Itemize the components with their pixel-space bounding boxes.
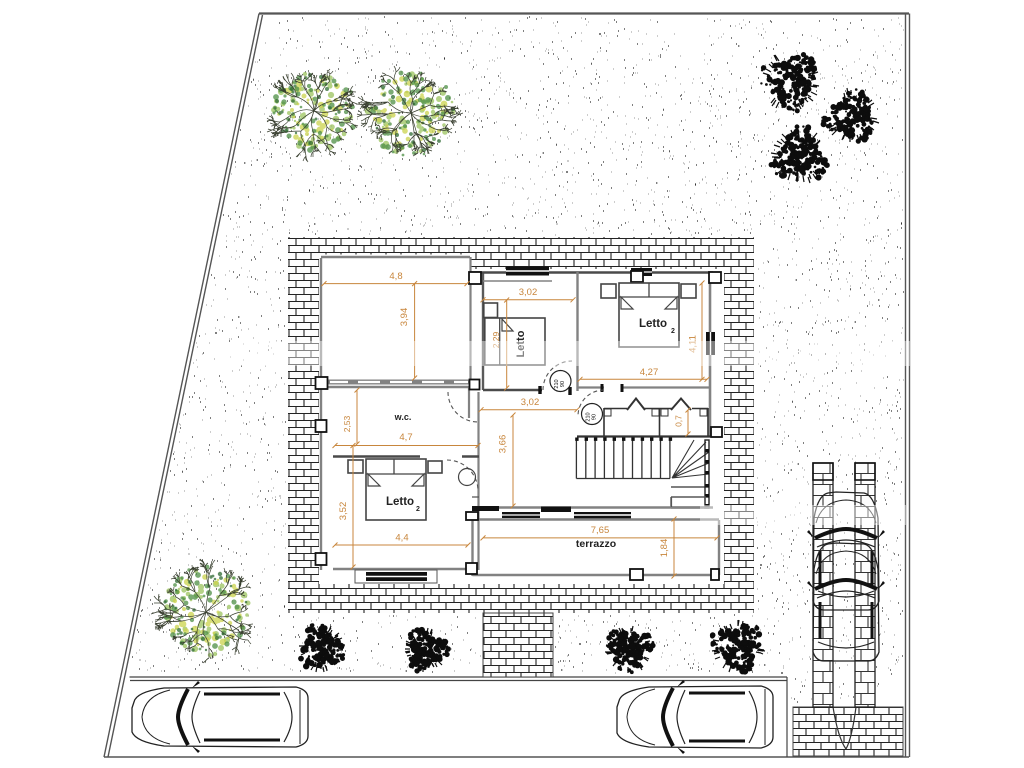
svg-text:Letto: Letto (386, 496, 414, 508)
svg-text:3,02: 3,02 (519, 287, 538, 298)
svg-text:2: 2 (416, 506, 420, 513)
svg-text:2,53: 2,53 (342, 415, 352, 432)
svg-text:3,02: 3,02 (521, 397, 540, 408)
svg-text:2: 2 (671, 328, 675, 335)
svg-text:3,66: 3,66 (498, 435, 509, 454)
svg-text:3,94: 3,94 (399, 308, 410, 327)
svg-text:terrazzo: terrazzo (576, 538, 616, 550)
svg-text:4,7: 4,7 (399, 432, 412, 443)
svg-text:4,27: 4,27 (640, 367, 659, 378)
svg-text:4,4: 4,4 (395, 533, 408, 544)
svg-text:3,52: 3,52 (338, 502, 349, 521)
svg-text:90: 90 (592, 414, 598, 420)
svg-text:w.c.: w.c. (394, 412, 412, 422)
svg-text:1,84: 1,84 (659, 539, 670, 558)
svg-text:Letto: Letto (639, 318, 667, 330)
svg-text:0,7: 0,7 (674, 415, 684, 427)
svg-text:4,8: 4,8 (389, 271, 402, 282)
svg-text:7,65: 7,65 (591, 525, 610, 536)
svg-text:90: 90 (560, 381, 566, 387)
